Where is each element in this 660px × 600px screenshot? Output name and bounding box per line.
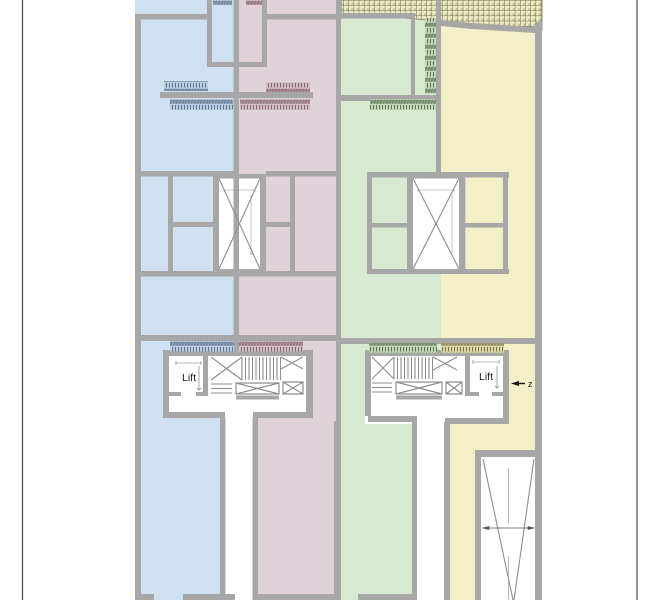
svg-text:Lift: Lift bbox=[182, 372, 196, 384]
svg-text:Lift: Lift bbox=[479, 371, 493, 383]
svg-text:z: z bbox=[528, 379, 533, 389]
